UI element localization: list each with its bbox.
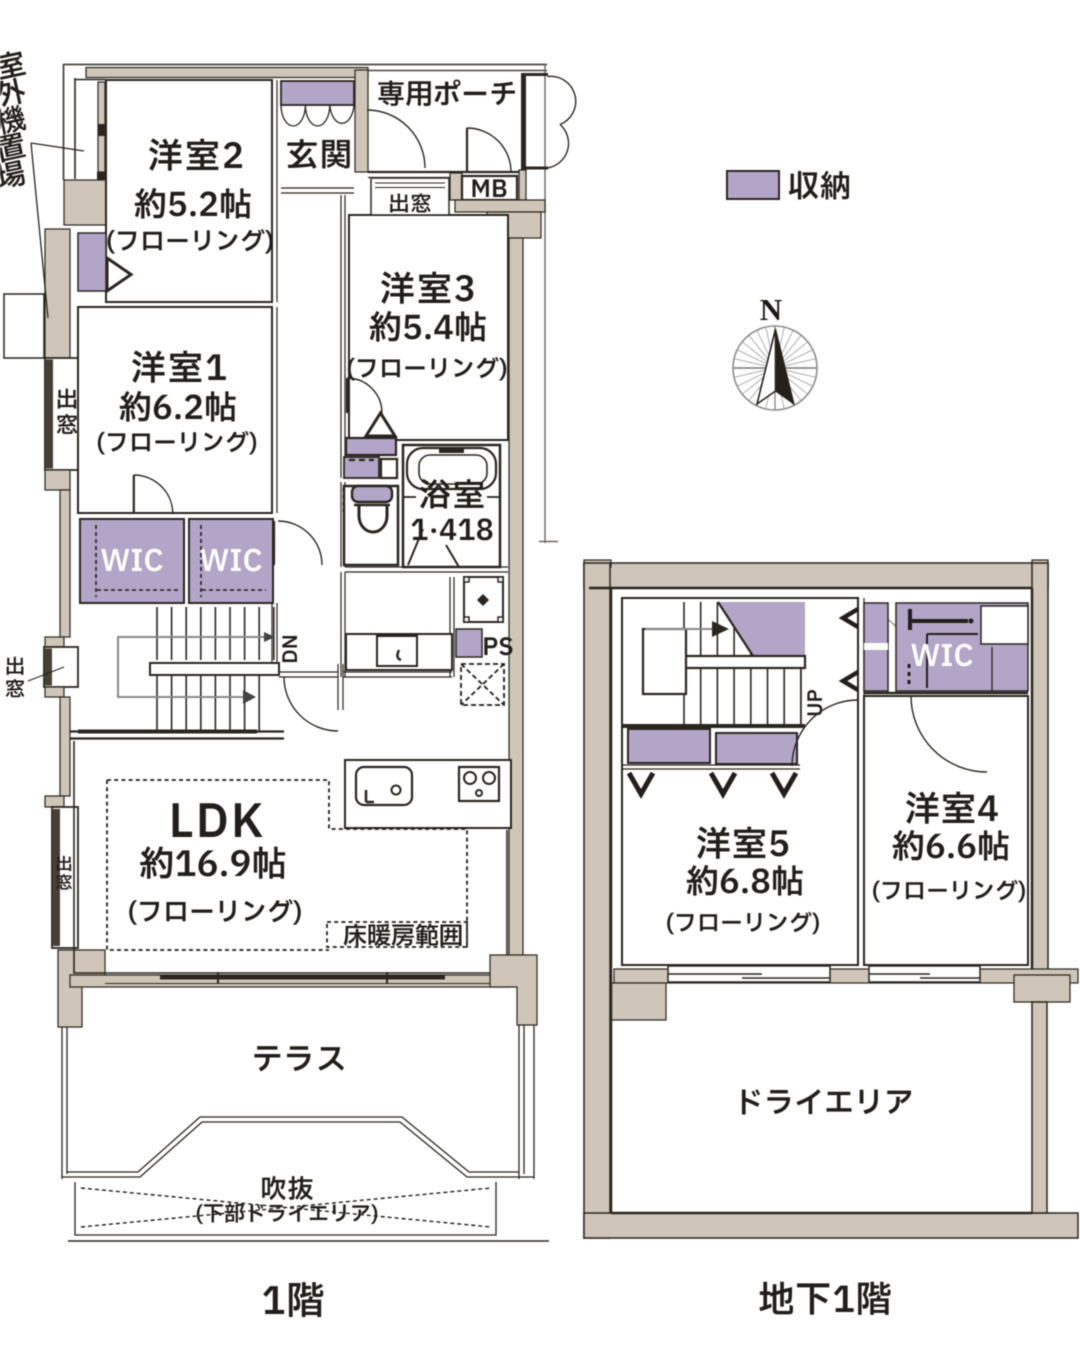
svg-text:N: N [760, 292, 782, 327]
